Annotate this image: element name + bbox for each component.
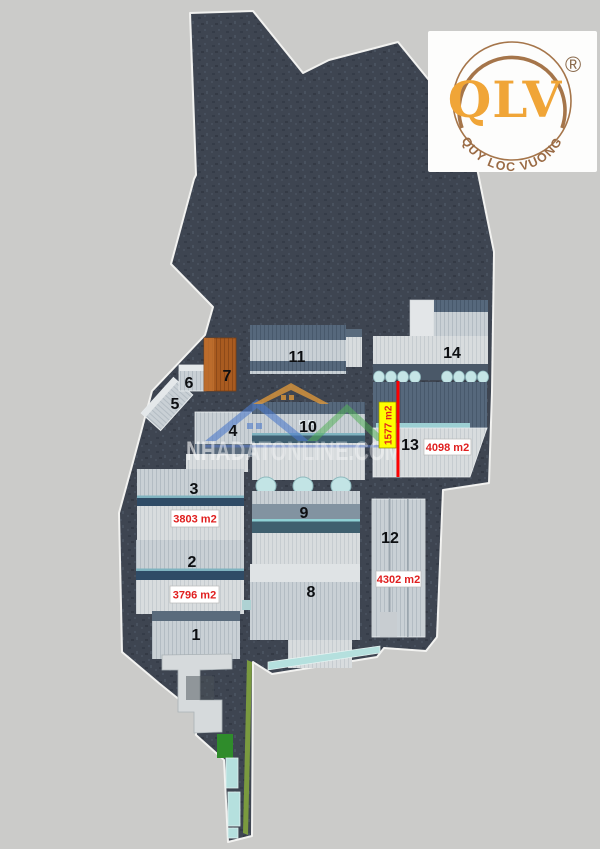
building-5-number: 5	[171, 396, 180, 413]
logo-brand: QLV	[448, 70, 563, 129]
logo: QLV ® QUY LOC VUONG	[428, 31, 597, 174]
svg-text:3796 m2: 3796 m2	[173, 590, 216, 602]
building-1-number: 1	[192, 627, 201, 644]
building-6-number: 6	[185, 375, 194, 392]
building-11	[250, 325, 362, 374]
building-2	[136, 540, 244, 621]
building-4-number: 4	[229, 423, 238, 440]
building-10-number: 10	[299, 419, 317, 436]
building-12	[372, 499, 425, 637]
svg-text:4098 m2: 4098 m2	[426, 442, 469, 454]
building-13-number: 13	[401, 437, 419, 454]
building-3-number: 3	[190, 481, 199, 498]
building-7-number: 7	[223, 368, 232, 385]
svg-text:4302 m2: 4302 m2	[377, 574, 420, 586]
area-label-4098: 4098 m2	[424, 439, 471, 455]
building-9	[252, 491, 360, 575]
area-label-3796: 3796 m2	[170, 586, 219, 603]
area-label-4302: 4302 m2	[376, 571, 421, 587]
area-label-1577: 1577 m2	[379, 402, 396, 448]
logo-registered-icon: ®	[565, 52, 581, 77]
building-11-number: 11	[289, 349, 306, 366]
building-12-number: 12	[381, 530, 399, 547]
svg-text:1577 m2: 1577 m2	[384, 405, 395, 445]
walkway-inner-shadow	[186, 676, 214, 700]
grass-patch	[217, 734, 233, 758]
svg-text:3803 m2: 3803 m2	[173, 514, 216, 526]
area-label-3803: 3803 m2	[171, 510, 219, 527]
building-9-number: 9	[300, 505, 309, 522]
building-2-number: 2	[188, 554, 197, 571]
site-plan-image: NHADATONLINE.COM 1 2 3 4 5 6 7 8 9 10 11…	[0, 0, 600, 849]
watermark-text: NHADATONLINE.COM	[186, 436, 402, 466]
teal-buildings-tail	[226, 758, 240, 838]
building-8-number: 8	[307, 584, 316, 601]
building-14-number: 14	[443, 345, 461, 362]
